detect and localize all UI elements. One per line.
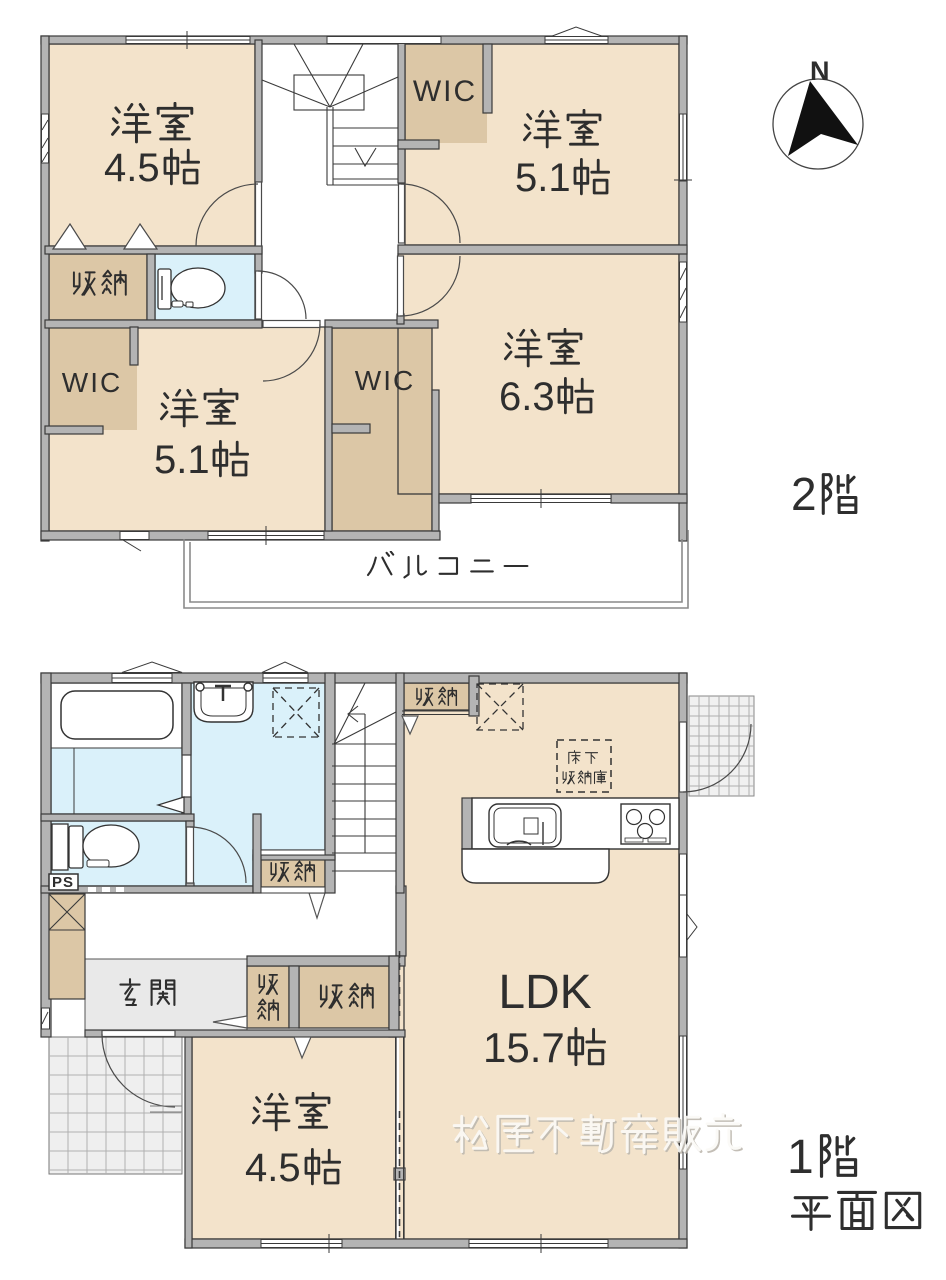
svg-text:PS: PS xyxy=(52,874,74,891)
svg-text:4.5: 4.5 xyxy=(104,146,160,190)
svg-text:WIC: WIC xyxy=(355,365,415,396)
svg-text:N: N xyxy=(810,56,830,86)
svg-text:2: 2 xyxy=(791,468,817,520)
svg-text:WIC: WIC xyxy=(62,367,122,398)
svg-text:15.7: 15.7 xyxy=(483,1024,565,1071)
svg-text:5.1: 5.1 xyxy=(515,156,571,200)
svg-text:6.3: 6.3 xyxy=(499,375,555,419)
svg-text:4.5: 4.5 xyxy=(245,1146,301,1190)
svg-text:WIC: WIC xyxy=(413,75,477,108)
svg-text:1: 1 xyxy=(787,1131,814,1184)
svg-text:5.1: 5.1 xyxy=(154,438,210,482)
svg-text:LDK: LDK xyxy=(498,966,591,1019)
